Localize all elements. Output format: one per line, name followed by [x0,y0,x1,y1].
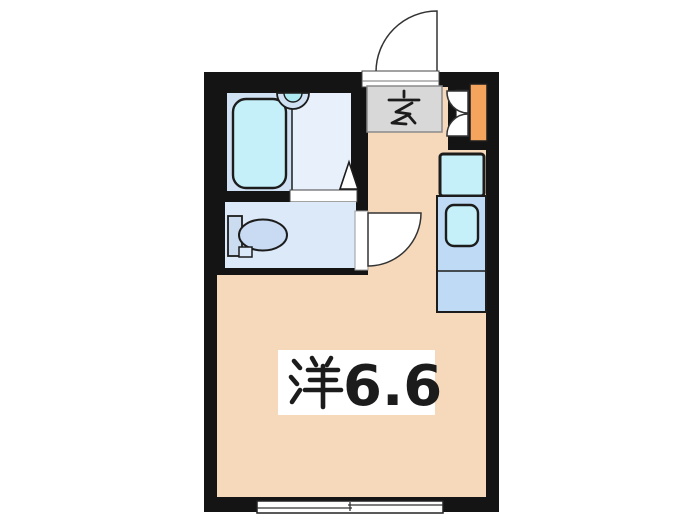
entrance: 玄 [362,11,442,132]
bathtub [233,99,286,188]
toilet-door-jamb [355,211,368,270]
shoe-cabinet [470,84,487,141]
entrance-door-swing [376,11,437,72]
kitchen-stove [440,154,484,196]
room-label: 6.6 洋6.6 [278,350,442,419]
floorplan-page: 玄 6.6 洋6.6 [0,0,700,525]
kitchen [437,154,486,312]
room-full-label: 洋6.6 [291,354,421,412]
entrance-threshold [362,71,439,87]
toilet-bowl [239,220,287,251]
floor-plan-canvas: 玄 6.6 洋6.6 [0,0,700,525]
toilet-room [225,202,356,268]
window [257,501,443,513]
bathroom [227,93,358,202]
toilet-small-fixture [239,247,252,257]
bathroom-door-strip [290,190,357,202]
entrance-label: 玄 [387,89,421,129]
wall-left [204,72,217,512]
entrance-storage [447,72,498,150]
kitchen-sink [446,205,478,246]
